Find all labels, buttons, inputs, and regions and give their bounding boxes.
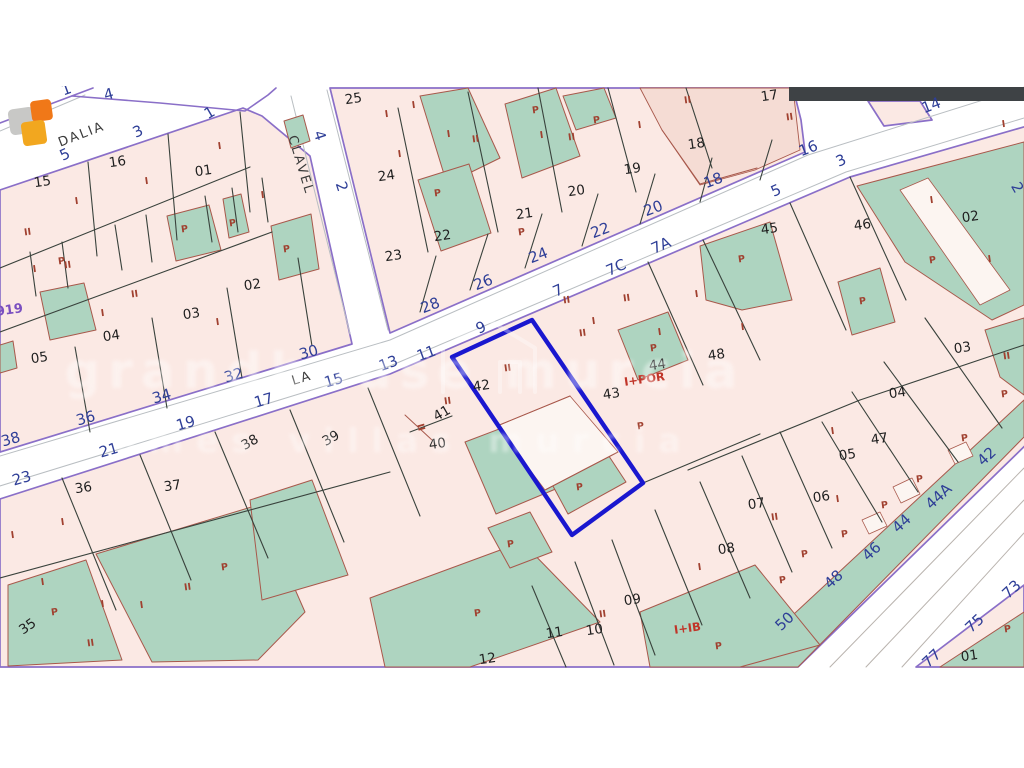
- parcel-number-labels-text: 05: [838, 446, 857, 464]
- construction-markers-text: II: [130, 289, 139, 301]
- parcel-number-labels-text: 45: [760, 220, 779, 238]
- parcel-number-labels-text: 10: [585, 621, 604, 639]
- parcel-number-labels-text: 01: [960, 647, 979, 665]
- parcel-number-labels-text: 06: [812, 488, 831, 506]
- parcel-number-labels-text: 16: [108, 153, 127, 171]
- street-names-text: DALIA: [56, 119, 107, 150]
- street-numbers-text: 4: [310, 128, 330, 143]
- construction-markers-text: II: [63, 260, 72, 272]
- parcel-number-labels-text: 09: [623, 591, 642, 609]
- construction-markers-text: II: [562, 295, 571, 307]
- construction-markers-text: I: [1001, 119, 1006, 130]
- parcel-number-labels-text: 47: [870, 430, 889, 448]
- partial-tooltip-bar-item: [789, 87, 1024, 101]
- street-numbers-text: 2: [332, 179, 352, 194]
- parcel-number-labels-text: 12: [478, 650, 497, 668]
- street-numbers-text: 3: [130, 121, 146, 141]
- cadastral-map-viewport[interactable]: 1516010203040525242322212019171845464802…: [0, 0, 1024, 768]
- parcel-number-labels-text: 03: [953, 339, 972, 357]
- street-numbers-text: 3: [833, 150, 849, 170]
- agency-logo-amber-item: [20, 119, 47, 146]
- parcel-number-labels-text: 25: [344, 90, 363, 108]
- construction-markers-text: II: [1002, 351, 1011, 363]
- parcel-number-labels-text: 18: [687, 135, 706, 153]
- construction-markers-text: II: [622, 293, 631, 305]
- parcel-number-labels-text: 36: [74, 479, 93, 497]
- construction-markers-text: II: [598, 609, 607, 621]
- construction-markers-text: II: [683, 95, 692, 107]
- parcel-number-labels-text: 21: [515, 205, 534, 223]
- construction-markers-text: II: [785, 112, 794, 124]
- street-numbers-text: 5: [768, 180, 784, 200]
- watermark-text-small-text: homes villas murcia: [76, 421, 693, 460]
- agency-logo-orange: [30, 99, 54, 123]
- cadastral-map[interactable]: 1516010203040525242322212019171845464802…: [0, 0, 1024, 768]
- parcel-number-labels-text: 08: [717, 540, 736, 558]
- agency-logo-amber: [20, 119, 47, 146]
- parcel-number-labels-text: 15: [33, 173, 52, 191]
- parcel-number-labels-text: 20: [567, 182, 586, 200]
- construction-markers-text: II: [567, 132, 576, 144]
- parcel-number-labels-text: 03: [182, 305, 201, 323]
- construction-markers-text: II: [86, 638, 95, 650]
- parcel-number-labels-text: 07: [747, 495, 766, 513]
- parcel-number-labels-text: 46: [853, 216, 872, 234]
- construction-markers-text: II: [770, 512, 779, 524]
- parcel-number-labels-text: 37: [163, 477, 182, 495]
- parcel-number-labels-text: 22: [433, 227, 452, 245]
- construction-markers-text: II: [471, 134, 480, 146]
- parcel-number-labels-text: 17: [760, 87, 779, 105]
- green-patio-parcels-item: [271, 214, 319, 280]
- parcel-number-labels-text: 24: [377, 167, 396, 185]
- watermark-text-small: homes villas murcia: [76, 421, 693, 460]
- parcel-number-labels-text: 01: [194, 162, 213, 180]
- parcel-number-labels-text: 23: [384, 247, 403, 265]
- construction-markers-text: II: [23, 227, 32, 239]
- street-numbers-text: 4: [102, 84, 116, 104]
- partial-tooltip-bar: [789, 87, 1024, 101]
- watermark-text-large-text: grandhouse murcia: [64, 342, 745, 400]
- construction-markers-text: II: [183, 582, 192, 594]
- street-numbers-text: 23: [10, 467, 33, 490]
- street-numbers-text: 1: [59, 79, 74, 99]
- watermark-text-large: grandhouse murcia: [64, 342, 745, 400]
- parcel-number-labels-text: 04: [888, 384, 907, 402]
- parcel-number-labels-text: 02: [243, 276, 262, 294]
- parcel-number-labels-text: 05: [30, 349, 49, 367]
- parcel-number-labels-text: 11: [545, 624, 564, 642]
- parcel-number-labels-text: 19: [623, 160, 642, 178]
- agency-logo-orange-item: [30, 99, 54, 123]
- parcel-number-labels-text: 02: [961, 208, 980, 226]
- construction-markers-text: II: [578, 328, 587, 340]
